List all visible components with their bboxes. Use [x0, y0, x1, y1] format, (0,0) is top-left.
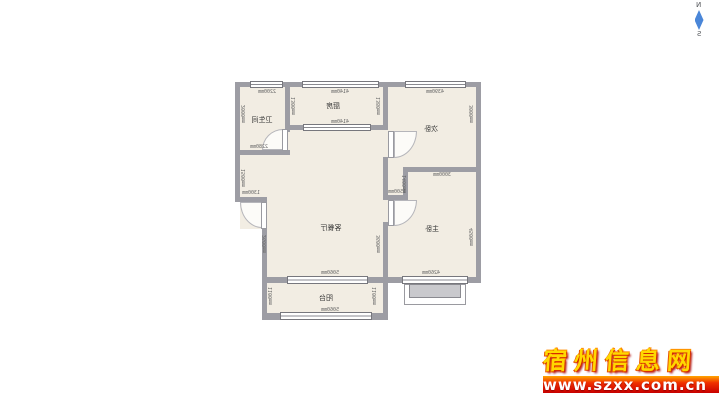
watermark-url: www.szxx.com.cn	[543, 376, 707, 393]
wall-segment	[383, 222, 388, 277]
door-master-panel	[388, 200, 394, 226]
door-bathroom-panel	[282, 129, 288, 151]
compass-arrow-icon	[695, 10, 704, 30]
room-area	[262, 197, 476, 277]
dimension-label: 4140mm	[331, 89, 349, 95]
sliding-door-balcony	[287, 276, 368, 284]
dimension-label: 3000mm	[469, 105, 475, 123]
dimension-label: 2000mm	[241, 105, 247, 123]
window-kitchen-top	[302, 81, 379, 88]
dimension-label: 4140mm	[331, 119, 349, 125]
wall-segment	[383, 87, 388, 125]
dimension-label: 3600mm	[376, 235, 382, 253]
compass-south-label: S	[697, 31, 701, 38]
watermark-url-bar: www.szxx.com.cn	[543, 376, 719, 393]
window-master-bottom	[402, 276, 468, 284]
dimension-label: 5060mm	[321, 270, 339, 276]
dimension-label: 2600mm	[262, 235, 268, 253]
room-label: 厨房	[326, 101, 340, 111]
compass: N S	[688, 2, 710, 38]
wall-segment	[383, 283, 388, 313]
wall-segment	[235, 87, 240, 197]
window-bathroom-top	[250, 81, 283, 88]
compass-north-label: N	[696, 2, 701, 9]
dimension-label: 1500mm	[241, 169, 247, 187]
dimension-label: 4500mm	[469, 228, 475, 246]
dimension-label: 1500mm	[388, 189, 406, 195]
wall-segment	[476, 87, 481, 283]
floor-plan: 2200mm4140mm4390mm2000mm1300mm2280mm4140…	[235, 82, 481, 320]
room-label: 卫生间	[252, 115, 273, 125]
sliding-door-kitchen	[303, 124, 371, 131]
window-bedroom2-top	[405, 81, 466, 88]
dimension-label: 1100mm	[372, 287, 378, 305]
dimension-label: 1300mm	[242, 190, 260, 196]
dimension-label: 4260mm	[422, 270, 440, 276]
room-label: 阳台	[319, 293, 333, 303]
dimension-label: 5060mm	[321, 307, 339, 313]
dimension-label: 4390mm	[426, 89, 444, 95]
dimension-label: 1300mm	[291, 97, 297, 115]
dimension-label: 2280mm	[250, 144, 268, 150]
room-label: 次卧	[424, 124, 438, 134]
watermark-site-name: 宿州信息网	[542, 348, 720, 375]
dimension-label: 1100mm	[268, 287, 274, 305]
door-bedroom2-panel	[388, 131, 394, 158]
floor-plan-image: 2200mm4140mm4390mm2000mm1300mm2280mm4140…	[0, 0, 720, 405]
watermark: 宿州信息网 www.szxx.com.cn	[543, 348, 719, 393]
dimension-label: 1380mm	[376, 97, 382, 115]
room-label: 客餐厅	[321, 223, 342, 233]
window-balcony-bottom	[280, 312, 372, 320]
ac-platform-unit	[409, 284, 461, 298]
door-entry-panel	[261, 202, 267, 229]
dimension-label: 3000mm	[433, 172, 451, 178]
dimension-label: 2200mm	[258, 89, 276, 95]
room-label: 主卧	[425, 224, 439, 234]
